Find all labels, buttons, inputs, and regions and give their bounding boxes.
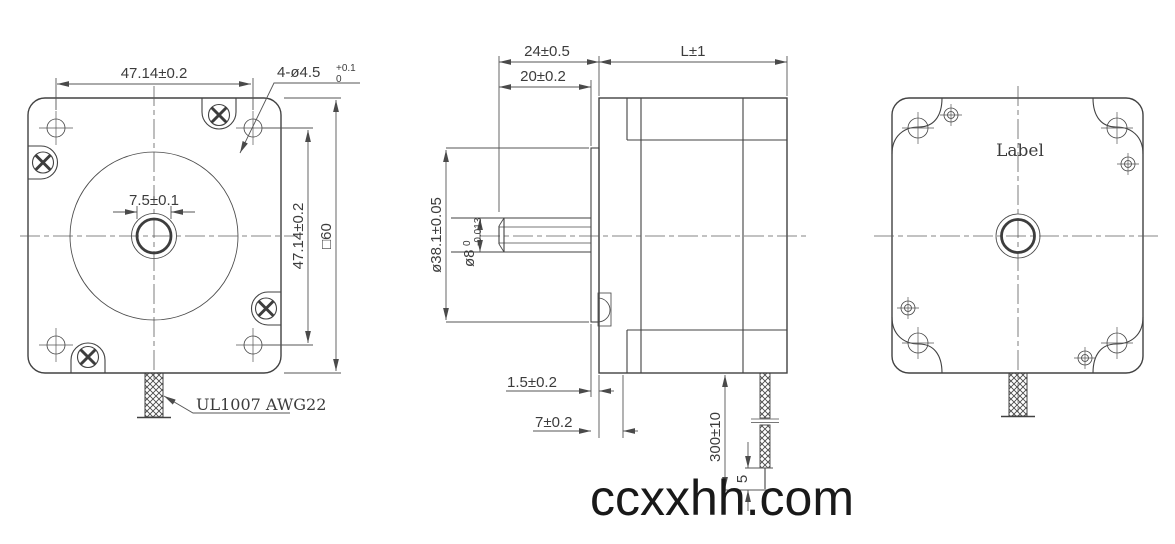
dim-hole-spacing-vertical: 47.14±0.2 — [290, 203, 307, 270]
dim-shaft-diameter: ø8 — [461, 249, 478, 267]
corner-ear-cutout — [1093, 317, 1143, 373]
corner-ear-cutout — [892, 98, 942, 154]
dim-shaft-diameter-upper-tolerance: 0 — [462, 240, 473, 246]
mounting-hole — [39, 328, 73, 362]
front-view: 47.14±0.2 4-ø4.5 +0.1 0 7.5±0.1 47.14±0.… — [20, 63, 360, 418]
corner-ear-cutout — [1093, 98, 1143, 154]
dimension-shaft-diameter: ø8 0 -0.013 — [461, 217, 484, 267]
corner-ear-cutout — [892, 317, 942, 373]
dim-body-length: L±1 — [681, 43, 706, 60]
dim-shaft-flat: 7.5±0.1 — [129, 192, 179, 209]
dimension-shaft-length: 20±0.2 — [499, 68, 591, 146]
lead-wire — [137, 373, 171, 418]
screw-position-marker-icon — [1117, 153, 1139, 175]
dim-shaft-diameter-lower-tolerance: -0.013 — [473, 217, 484, 246]
mounting-hole — [902, 112, 934, 144]
watermark-text: ccxxhh.com — [590, 470, 854, 526]
dim-hole-spacing-horizontal: 47.14±0.2 — [121, 65, 188, 82]
back-face-outline — [892, 98, 1143, 373]
phillips-screw-icon — [252, 292, 282, 325]
mounting-hole — [39, 111, 73, 145]
mounting-hole — [902, 327, 934, 359]
mounting-hole — [1101, 112, 1133, 144]
phillips-screw-icon — [28, 146, 58, 179]
dim-shaft-extension: 24±0.5 — [524, 43, 570, 60]
engineering-drawing-page: 47.14±0.2 4-ø4.5 +0.1 0 7.5±0.1 47.14±0.… — [0, 0, 1175, 544]
dim-frame-size: □60 — [318, 223, 335, 249]
motor-label: Label — [996, 141, 1044, 161]
phillips-screw-icon — [202, 98, 236, 129]
dimension-hole-spacing-horizontal: 47.14±0.2 — [56, 65, 253, 110]
dim-front-depth: 7±0.2 — [535, 414, 572, 431]
screw-position-marker-icon — [940, 104, 962, 126]
wire-exit-detail — [598, 293, 611, 326]
dimension-boss-diameter: ø38.1±0.05 — [428, 148, 589, 322]
side-view: 24±0.5 20±0.2 L±1 ø38.1±0.05 ø8 0 -0.013 — [428, 43, 810, 511]
dim-boss-height: 1.5±0.2 — [507, 374, 557, 391]
hole-callout-lower-tolerance: 0 — [336, 74, 342, 85]
dim-wire-length: 300±10 — [707, 412, 724, 462]
back-view: Label — [874, 86, 1161, 417]
dimension-shaft-flat: 7.5±0.1 — [113, 192, 195, 219]
dimension-body-length: L±1 — [599, 43, 787, 96]
screw-position-marker-icon — [897, 297, 919, 319]
wire-spec-label: UL1007 AWG22 — [196, 395, 326, 414]
hole-callout: 4-ø4.5 +0.1 0 — [240, 63, 360, 153]
motor-drawing: 47.14±0.2 4-ø4.5 +0.1 0 7.5±0.1 47.14±0.… — [0, 0, 1175, 544]
dim-shaft-length: 20±0.2 — [520, 68, 566, 85]
front-face-outline — [28, 98, 281, 373]
lead-wire — [1001, 373, 1035, 417]
hole-callout-base: 4-ø4.5 — [277, 64, 320, 81]
dim-boss-diameter: ø38.1±0.05 — [428, 197, 445, 273]
mounting-hole — [1101, 327, 1133, 359]
wire-spec-callout: UL1007 AWG22 — [164, 395, 326, 414]
hole-callout-upper-tolerance: +0.1 — [336, 63, 356, 74]
phillips-screw-icon — [71, 343, 105, 373]
screw-position-marker-icon — [1074, 347, 1096, 369]
